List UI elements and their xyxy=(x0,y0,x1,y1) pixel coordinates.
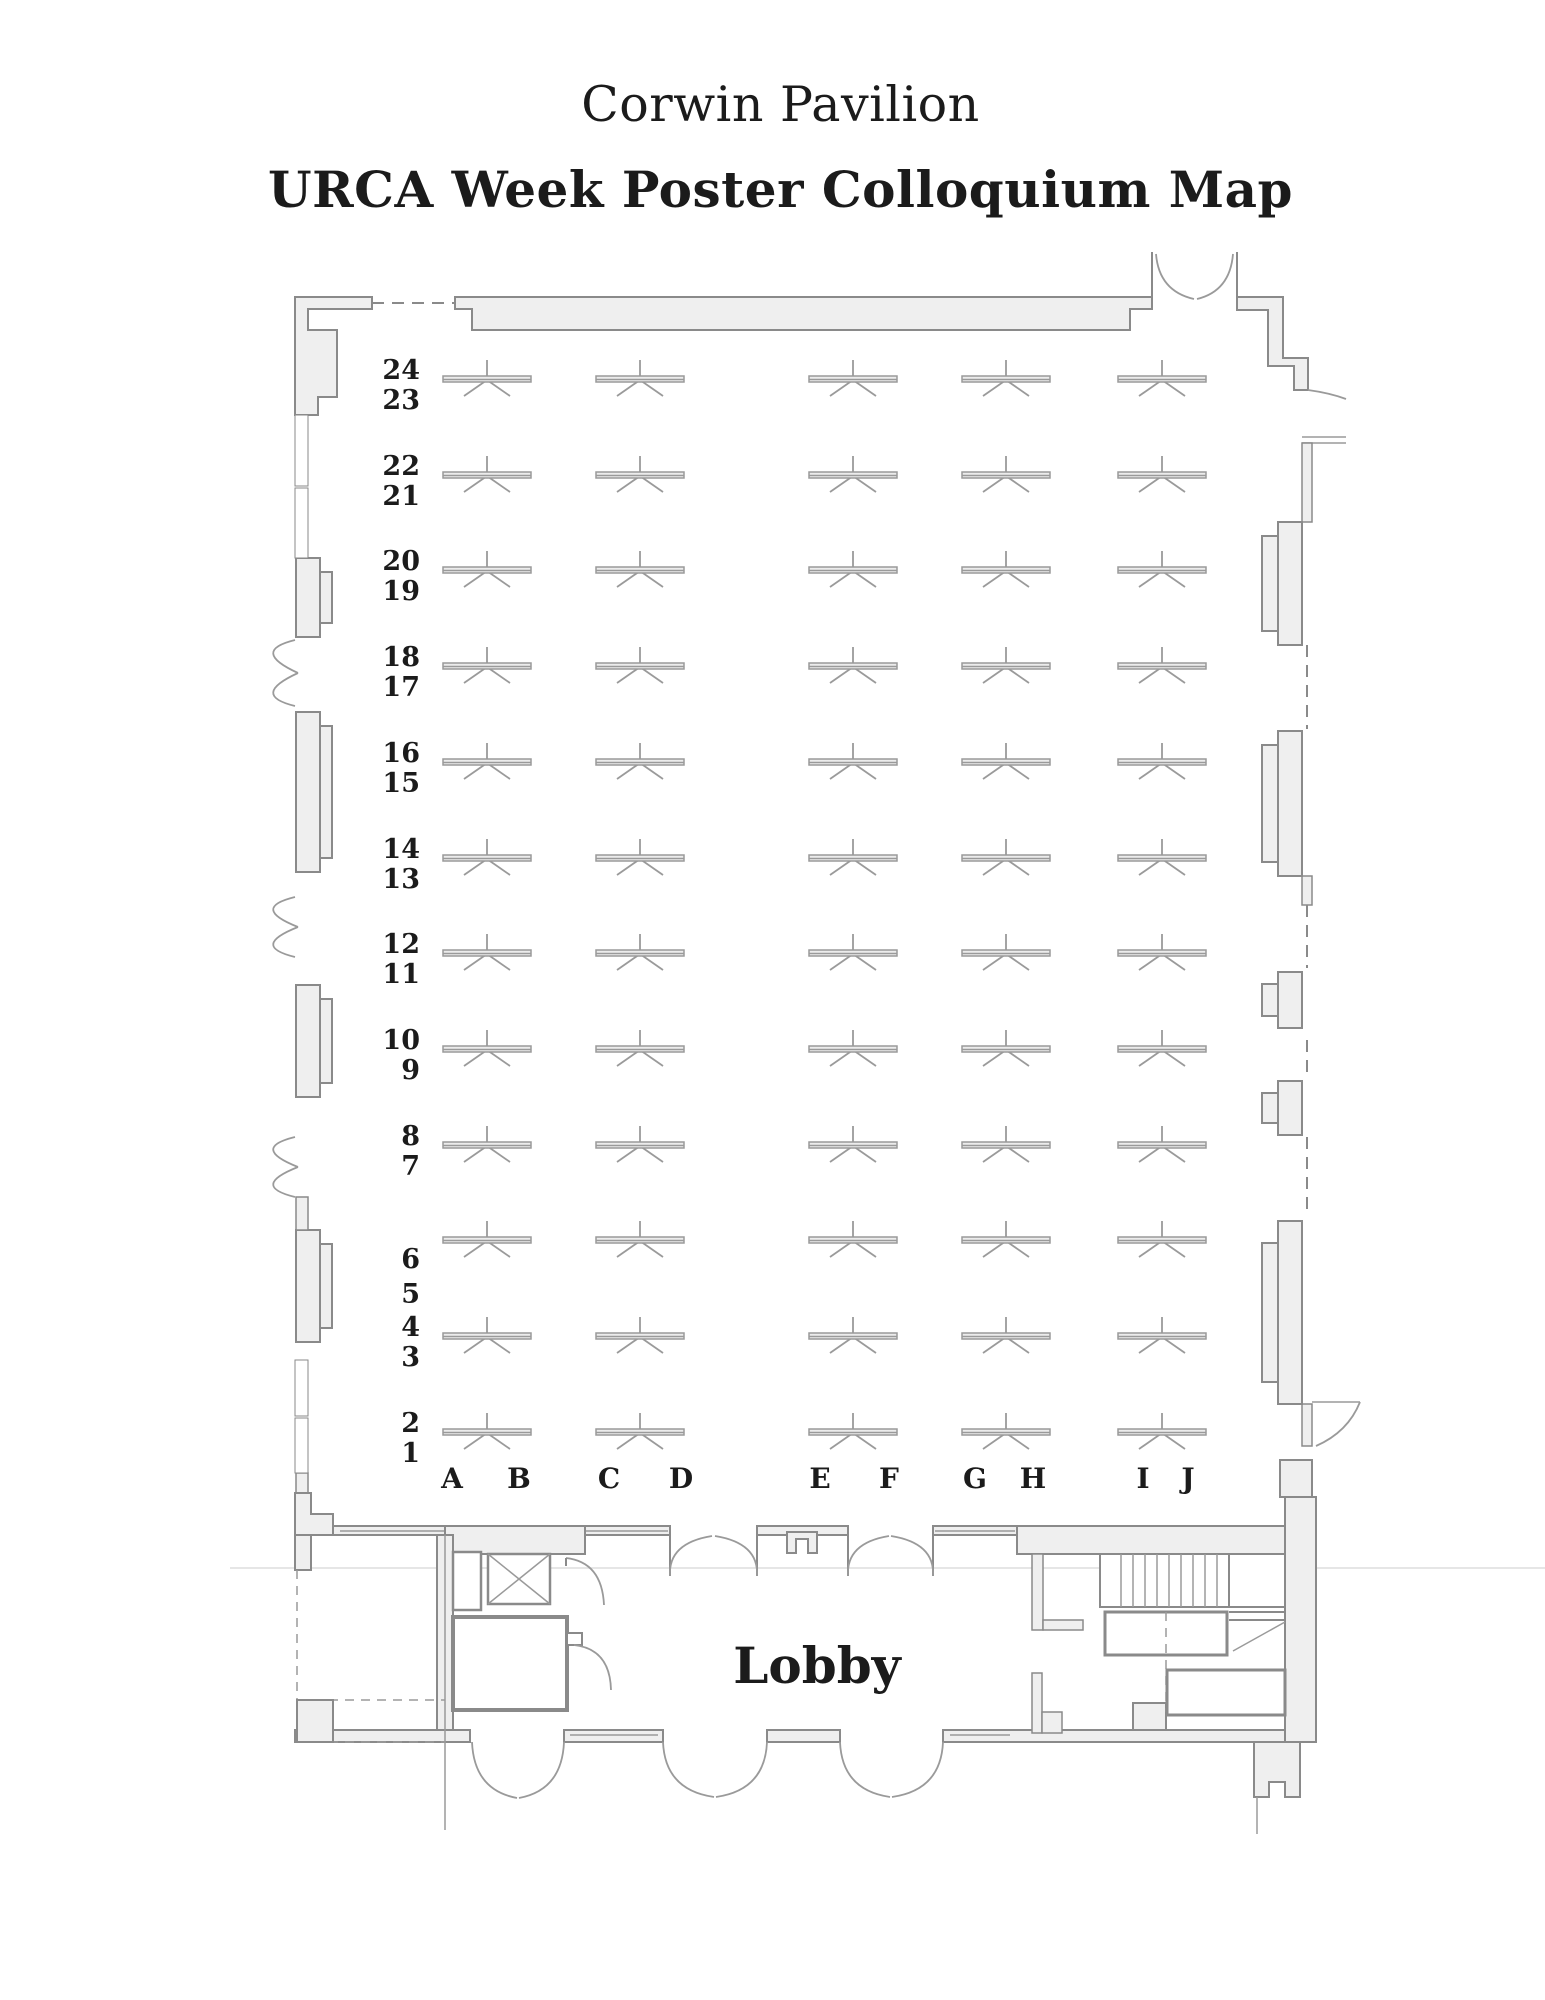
table-icon xyxy=(809,1126,897,1162)
table-icon xyxy=(596,743,684,779)
staircase xyxy=(1100,1554,1285,1715)
table-icon xyxy=(962,360,1050,396)
row-label: 9 xyxy=(401,1055,420,1086)
elevator-area xyxy=(453,1552,611,1710)
table-icon xyxy=(596,1030,684,1066)
table-icon xyxy=(962,551,1050,587)
table-icon xyxy=(596,551,684,587)
column-letter: C xyxy=(598,1462,620,1495)
table-icon xyxy=(443,360,531,396)
poster-tables xyxy=(443,360,1206,1449)
table-icon xyxy=(962,1030,1050,1066)
table-icon xyxy=(1118,360,1206,396)
table-icon xyxy=(1118,839,1206,875)
table-icon xyxy=(443,456,531,492)
table-icon xyxy=(1118,1221,1206,1257)
row-label: 23 xyxy=(382,385,420,416)
table-icon xyxy=(1118,647,1206,683)
table-icon xyxy=(443,1126,531,1162)
table-icon xyxy=(443,1221,531,1257)
table-icon xyxy=(1118,1126,1206,1162)
column-letter: A xyxy=(440,1462,464,1495)
row-label: 11 xyxy=(382,959,420,990)
table-icon xyxy=(1118,934,1206,970)
column-letter: D xyxy=(669,1462,693,1495)
table-icon xyxy=(443,1030,531,1066)
table-icon xyxy=(809,1317,897,1353)
table-icon xyxy=(809,456,897,492)
table-icon xyxy=(962,743,1050,779)
table-icon xyxy=(596,934,684,970)
poster-colloquium-map-page: Corwin Pavilion URCA Week Poster Colloqu… xyxy=(0,0,1545,2000)
row-label: 7 xyxy=(401,1151,420,1182)
table-icon xyxy=(809,360,897,396)
row-label: 16 xyxy=(382,738,420,769)
table-icon xyxy=(1118,456,1206,492)
table-icon xyxy=(596,360,684,396)
table-icon xyxy=(1118,551,1206,587)
row-label: 14 xyxy=(382,834,420,865)
table-icon xyxy=(1118,1317,1206,1353)
table-icon xyxy=(809,1413,897,1449)
column-letter: E xyxy=(809,1462,830,1495)
table-icon xyxy=(962,934,1050,970)
column-letter: J xyxy=(1178,1462,1194,1495)
table-icon xyxy=(809,743,897,779)
row-label: 21 xyxy=(382,481,420,512)
column-letter: G xyxy=(963,1462,987,1495)
table-icon xyxy=(1118,743,1206,779)
table-icon xyxy=(596,1413,684,1449)
table-icon xyxy=(1118,1413,1206,1449)
row-label: 15 xyxy=(382,768,420,799)
table-icon xyxy=(596,1221,684,1257)
table-icon xyxy=(962,1126,1050,1162)
table-icon xyxy=(596,456,684,492)
table-icon xyxy=(1118,1030,1206,1066)
row-label: 19 xyxy=(382,576,420,607)
stair-landing xyxy=(1229,1554,1285,1607)
column-letter: F xyxy=(879,1462,899,1495)
column-letter: B xyxy=(507,1462,531,1495)
table-icon xyxy=(596,1317,684,1353)
table-icon xyxy=(809,839,897,875)
table-icon xyxy=(962,647,1050,683)
table-icon xyxy=(809,1030,897,1066)
column-labels: ABCDEFGHIJ xyxy=(440,1462,1194,1495)
row-labels: 242322212019181716151413121110987654321 xyxy=(382,355,420,1469)
storage-room xyxy=(453,1617,567,1710)
stair-lower-room xyxy=(1167,1670,1285,1715)
row-label: 12 xyxy=(382,929,420,960)
row-label: 20 xyxy=(382,546,420,577)
row-label: 10 xyxy=(382,1025,420,1056)
shaft-side-rect xyxy=(453,1552,481,1610)
table-icon xyxy=(809,647,897,683)
table-icon xyxy=(962,1317,1050,1353)
row-label: 1 xyxy=(401,1438,420,1469)
column-letter: I xyxy=(1136,1462,1149,1495)
row-label: 3 xyxy=(401,1342,420,1373)
table-icon xyxy=(962,1413,1050,1449)
row-label: 4 xyxy=(401,1312,420,1343)
table-icon xyxy=(962,1221,1050,1257)
table-icon xyxy=(443,934,531,970)
table-icon xyxy=(809,934,897,970)
table-icon xyxy=(809,1221,897,1257)
table-icon xyxy=(443,1413,531,1449)
column-letter: H xyxy=(1020,1462,1046,1495)
floor-plan-svg: 242322212019181716151413121110987654321 … xyxy=(0,0,1545,2000)
table-icon xyxy=(443,743,531,779)
row-label: 8 xyxy=(401,1121,420,1152)
lobby-label: Lobby xyxy=(733,1636,902,1695)
row-label: 18 xyxy=(382,642,420,673)
elevator-icon xyxy=(488,1554,550,1604)
table-icon xyxy=(596,839,684,875)
table-icon xyxy=(443,551,531,587)
row-label: 6 xyxy=(401,1244,420,1275)
row-label: 22 xyxy=(382,451,420,482)
table-icon xyxy=(962,456,1050,492)
row-label: 5 xyxy=(401,1279,420,1310)
row-label: 24 xyxy=(382,355,420,386)
table-icon xyxy=(596,1126,684,1162)
table-icon xyxy=(443,839,531,875)
table-icon xyxy=(596,647,684,683)
table-icon xyxy=(809,551,897,587)
row-label: 17 xyxy=(382,672,420,703)
right-wall xyxy=(1262,437,1360,1497)
table-icon xyxy=(443,647,531,683)
table-icon xyxy=(443,1317,531,1353)
row-label: 13 xyxy=(382,864,420,895)
table-icon xyxy=(962,839,1050,875)
row-label: 2 xyxy=(401,1408,420,1439)
